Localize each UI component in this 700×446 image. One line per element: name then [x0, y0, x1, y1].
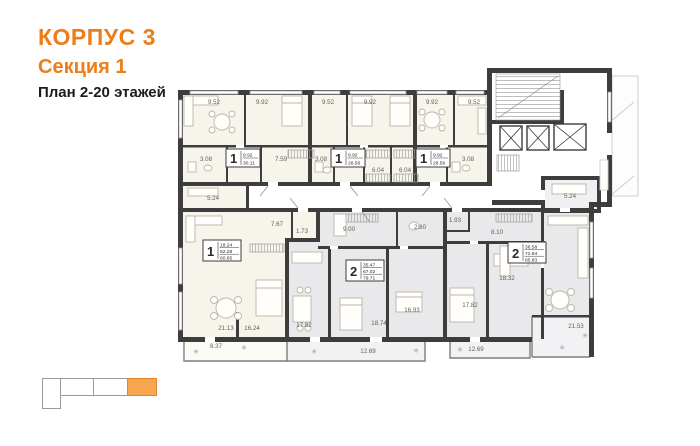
- minimap-block-section-1-active[interactable]: [127, 378, 157, 396]
- room-area-label: 17.82: [296, 322, 312, 329]
- room-area-label: 9.92: [426, 99, 439, 106]
- svg-text:28.56: 28.56: [348, 161, 361, 167]
- apartment-badge-6: 2 36.58 72.94 85.83: [508, 242, 546, 264]
- room-area-label: 21.53: [568, 323, 584, 330]
- room-area-label: 16.24: [244, 325, 260, 332]
- elevator-icon: [500, 126, 522, 150]
- room-area-label: 18.32: [499, 275, 515, 282]
- floor-plan-page: ✳ ✳ ✳ ✳ ✳ ✳ ✳ 9.52 9.92 9.52 9.92 9.92 9…: [0, 0, 700, 446]
- room-area-label: 7.67: [271, 221, 284, 228]
- room-area-label: 9.92: [364, 99, 377, 106]
- room-area-label: 6.04: [372, 167, 385, 174]
- svg-text:9.92: 9.92: [348, 153, 358, 159]
- room-area-label: 5.24: [207, 195, 220, 202]
- building-title: КОРПУС 3: [38, 24, 166, 50]
- room-area-label: 17.82: [462, 302, 478, 309]
- svg-text:30.11: 30.11: [243, 161, 255, 167]
- elevator-icon: [554, 124, 586, 150]
- elevator-icon: [527, 126, 549, 150]
- svg-text:1: 1: [335, 151, 342, 166]
- room-area-label: 9.52: [322, 99, 335, 106]
- room-area-label: 9.92: [256, 99, 269, 106]
- room-area-label: 9.52: [208, 99, 221, 106]
- room-area-label: 12.69: [468, 346, 484, 353]
- room-area-label: 1.93: [449, 217, 462, 224]
- plant-icon: ✳: [559, 344, 565, 352]
- room-area-label: 7.59: [275, 156, 288, 163]
- room-area-label: 8.37: [210, 343, 223, 350]
- apartment-badge-2: 1 9.92 28.56: [331, 149, 365, 167]
- elevator-icons: [500, 124, 586, 150]
- plant-icon: ✳: [193, 348, 199, 356]
- apartment-badge-3: 1 9.92 28.56: [416, 149, 450, 167]
- svg-text:9.92: 9.92: [433, 153, 443, 159]
- svg-text:28.56: 28.56: [433, 161, 446, 167]
- svg-text:60.65: 60.65: [220, 256, 233, 262]
- room-area-label: 1.73: [296, 228, 309, 235]
- room-area-label: 8.10: [491, 229, 504, 236]
- minimap-block-left-wing[interactable]: [42, 378, 61, 409]
- minimap-block-section-2[interactable]: [93, 378, 128, 396]
- floors-subtitle: План 2-20 этажей: [38, 84, 166, 101]
- room-area-label: 12.69: [360, 348, 376, 355]
- room-area-label: 21.13: [218, 325, 234, 332]
- svg-text:1: 1: [230, 151, 237, 166]
- room-area-label: 9.52: [468, 99, 481, 106]
- section-title: Секция 1: [38, 56, 166, 79]
- room-area-label: 3.08: [315, 156, 328, 163]
- svg-text:2: 2: [350, 264, 357, 279]
- svg-text:1: 1: [207, 244, 214, 259]
- plant-icon: ✳: [241, 344, 247, 352]
- room-area-label: 18.74: [371, 320, 387, 327]
- room-area-label: 2.80: [414, 224, 427, 231]
- room-area-label: 5.24: [564, 193, 577, 200]
- apartment-badge-4: 1 18.24 52.28 60.65: [203, 240, 241, 262]
- svg-text:9.92: 9.92: [243, 153, 253, 159]
- plant-icon: ✳: [582, 332, 588, 340]
- room-area-label: 3.08: [200, 156, 213, 163]
- room-area-label: 3.08: [462, 156, 475, 163]
- plant-icon: ✳: [457, 346, 463, 354]
- header: КОРПУС 3 Секция 1 План 2-20 этажей: [38, 24, 166, 102]
- stairs-icon: [496, 74, 560, 120]
- room-area-label: 16.93: [404, 307, 420, 314]
- svg-text:85.83: 85.83: [525, 258, 538, 264]
- room-area-label: 9.00: [343, 226, 356, 233]
- minimap-block-section-3[interactable]: [60, 378, 94, 396]
- loggia-outline: [610, 76, 638, 196]
- svg-text:1: 1: [420, 151, 427, 166]
- svg-text:2: 2: [512, 246, 519, 261]
- plant-icon: ✳: [311, 348, 317, 356]
- apartment-badge-1: 1 9.92 30.11: [226, 149, 260, 167]
- room-area-label: 6.04: [399, 167, 412, 174]
- plant-icon: ✳: [413, 347, 419, 355]
- apartment-badge-5: 2 35.47 67.02 79.71: [346, 260, 384, 282]
- svg-text:79.71: 79.71: [363, 276, 376, 282]
